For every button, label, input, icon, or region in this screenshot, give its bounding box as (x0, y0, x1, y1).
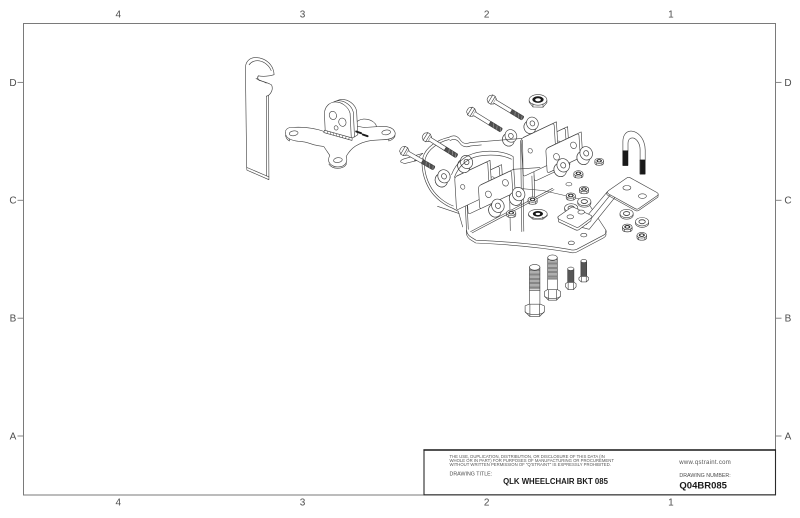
svg-text:C: C (9, 196, 16, 207)
svg-text:QLK WHEELCHAIR BKT 085: QLK WHEELCHAIR BKT 085 (503, 477, 608, 486)
svg-text:3: 3 (300, 10, 306, 21)
svg-text:2: 2 (484, 498, 490, 509)
svg-text:4: 4 (116, 10, 122, 21)
svg-text:DRAWING NUMBER:: DRAWING NUMBER: (679, 473, 730, 479)
svg-text:2: 2 (484, 10, 490, 21)
svg-text:A: A (785, 431, 792, 442)
svg-text:C: C (784, 196, 791, 207)
svg-text:D: D (784, 78, 791, 89)
svg-text:www.qstraint.com: www.qstraint.com (678, 460, 731, 466)
svg-text:B: B (785, 314, 792, 325)
svg-text:1: 1 (668, 498, 674, 509)
svg-text:3: 3 (300, 498, 306, 509)
svg-text:1: 1 (668, 10, 674, 21)
svg-text:WITHOUT WRITTEN PERMISSION OF: WITHOUT WRITTEN PERMISSION OF "Q'STRAINT… (450, 462, 611, 467)
svg-text:B: B (10, 314, 17, 325)
svg-text:D: D (9, 78, 16, 89)
svg-text:4: 4 (116, 498, 122, 509)
svg-text:A: A (10, 431, 17, 442)
svg-text:DRAWING TITLE:: DRAWING TITLE: (450, 471, 493, 477)
svg-text:Q04BR085: Q04BR085 (679, 481, 727, 492)
